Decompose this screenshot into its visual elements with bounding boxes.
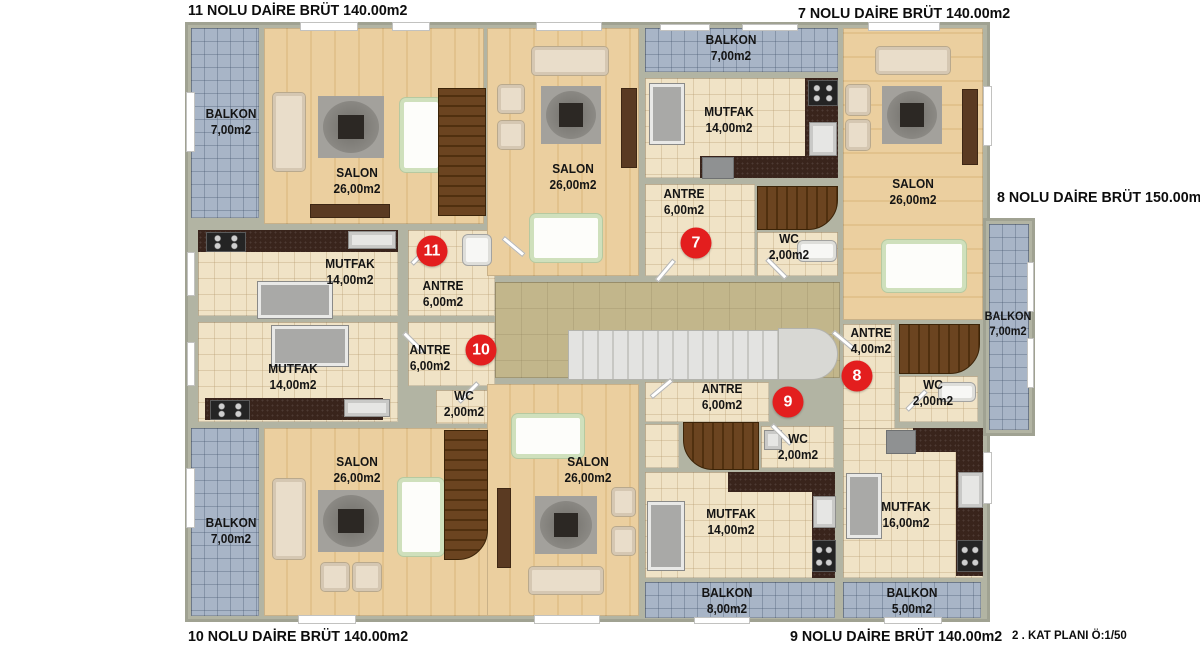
apartment-title-9: 9 NOLU DAİRE BRÜT 140.00m2 xyxy=(790,628,1002,645)
kitchen-table xyxy=(847,474,881,538)
armchair xyxy=(320,562,350,592)
sink xyxy=(344,399,390,417)
dining-table xyxy=(398,478,444,556)
balcony-rail xyxy=(884,617,942,624)
main-staircase-landing xyxy=(778,328,838,380)
sink xyxy=(348,231,396,249)
room-label: ANTRE4,00m2 xyxy=(851,325,892,358)
rug-coffee-table xyxy=(318,490,384,552)
room-label: BALKON7,00m2 xyxy=(206,515,257,548)
tv-unit xyxy=(621,88,637,168)
window xyxy=(187,252,195,296)
sofa xyxy=(875,46,951,75)
tv-unit xyxy=(310,204,390,218)
sofa xyxy=(272,92,306,172)
window xyxy=(868,22,940,31)
a10-duplex-stairs xyxy=(444,430,488,560)
kitchen-cabinet xyxy=(702,157,734,179)
unit-badge-9: 9 xyxy=(773,387,804,418)
bathtub xyxy=(462,234,492,266)
balcony-rail xyxy=(1027,262,1034,312)
balcony-rail xyxy=(694,617,750,624)
sink xyxy=(813,496,836,528)
dining-table xyxy=(882,240,966,292)
armchair xyxy=(352,562,382,592)
sofa xyxy=(272,478,306,560)
rug-coffee-table xyxy=(318,96,384,158)
kitchen-table xyxy=(648,502,684,570)
apartment-title-8: 8 NOLU DAİRE BRÜT 150.00m2 xyxy=(997,189,1200,206)
room-label: ANTRE6,00m2 xyxy=(423,278,464,311)
sofa xyxy=(528,566,604,595)
armchair xyxy=(611,487,636,517)
tv-unit xyxy=(962,89,978,165)
window xyxy=(536,22,602,31)
unit-badge-7: 7 xyxy=(681,228,712,259)
kitchen-table xyxy=(258,282,332,318)
unit-badge-10: 10 xyxy=(466,335,497,366)
dining-table xyxy=(530,214,602,262)
unit-badge-11: 11 xyxy=(417,236,448,267)
room-label: BALKON5,00m2 xyxy=(887,585,938,618)
window xyxy=(983,86,992,146)
room-label: SALON26,00m2 xyxy=(565,454,612,487)
room-label: BALKON7,00m2 xyxy=(985,310,1032,340)
armchair xyxy=(611,526,636,556)
window xyxy=(186,468,195,528)
armchair xyxy=(497,120,525,150)
dining-table xyxy=(400,98,442,172)
sink xyxy=(809,122,837,156)
kitchen-table xyxy=(650,84,684,144)
unit-badge-8: 8 xyxy=(842,361,873,392)
room-label: MUTFAK14,00m2 xyxy=(706,506,755,539)
window xyxy=(392,22,430,31)
kitchen-counter xyxy=(728,472,835,492)
rug-coffee-table xyxy=(882,86,942,144)
window xyxy=(534,615,600,624)
balcony-rail xyxy=(660,24,710,31)
apartment-title-11: 11 NOLU DAİRE BRÜT 140.00m2 xyxy=(188,2,407,19)
sofa xyxy=(531,46,609,76)
room-label: ANTRE6,00m2 xyxy=(664,186,705,219)
room-label: WC2,00m2 xyxy=(444,388,484,421)
window xyxy=(186,92,195,152)
room-label: MUTFAK16,00m2 xyxy=(881,499,930,532)
stove xyxy=(206,232,246,252)
a8-duplex-stairs xyxy=(899,324,980,374)
room-label: MUTFAK14,00m2 xyxy=(268,361,317,394)
dining-table xyxy=(512,414,584,458)
stove xyxy=(812,540,836,572)
balcony-rail xyxy=(1027,338,1034,388)
window xyxy=(983,452,992,504)
apartment-title-7: 7 NOLU DAİRE BRÜT 140.00m2 xyxy=(798,5,1010,22)
armchair xyxy=(497,84,525,114)
sink xyxy=(958,472,983,508)
room-label: SALON26,00m2 xyxy=(550,161,597,194)
window xyxy=(298,615,356,624)
room-a9-hall-strip xyxy=(645,424,679,468)
window xyxy=(187,342,195,386)
room-label: WC2,00m2 xyxy=(913,377,953,410)
room-label: BALKON7,00m2 xyxy=(706,32,757,65)
floor-plan: 11 NOLU DAİRE BRÜT 140.00m2 7 NOLU DAİRE… xyxy=(0,0,1200,649)
a11-duplex-stairs xyxy=(438,88,486,216)
apartment-title-10: 10 NOLU DAİRE BRÜT 140.00m2 xyxy=(188,628,408,645)
stove xyxy=(808,80,838,106)
tv-unit xyxy=(497,488,511,568)
balcony-rail xyxy=(742,24,798,31)
room-label: WC2,00m2 xyxy=(778,431,818,464)
a9-duplex-stairs xyxy=(683,422,759,470)
room-label: BALKON8,00m2 xyxy=(702,585,753,618)
stove xyxy=(210,400,250,420)
rug-coffee-table xyxy=(541,86,601,144)
room-label: SALON26,00m2 xyxy=(334,165,381,198)
room-label: MUTFAK14,00m2 xyxy=(704,104,753,137)
a7-duplex-stairs xyxy=(757,186,838,230)
window xyxy=(300,22,358,31)
plan-scale-note: 2 . KAT PLANI Ö:1/50 xyxy=(1012,630,1127,642)
room-label: WC2,00m2 xyxy=(769,231,809,264)
armchair xyxy=(845,119,871,151)
room-label: MUTFAK14,00m2 xyxy=(325,256,374,289)
room-label: SALON26,00m2 xyxy=(334,454,381,487)
armchair xyxy=(845,84,871,116)
room-label: ANTRE6,00m2 xyxy=(702,381,743,414)
room-label: ANTRE6,00m2 xyxy=(410,342,451,375)
stove xyxy=(957,540,983,572)
rug-coffee-table xyxy=(535,496,597,554)
kitchen-cabinet xyxy=(886,430,916,454)
room-label: SALON26,00m2 xyxy=(890,176,937,209)
room-label: BALKON7,00m2 xyxy=(206,106,257,139)
main-staircase xyxy=(568,330,782,380)
